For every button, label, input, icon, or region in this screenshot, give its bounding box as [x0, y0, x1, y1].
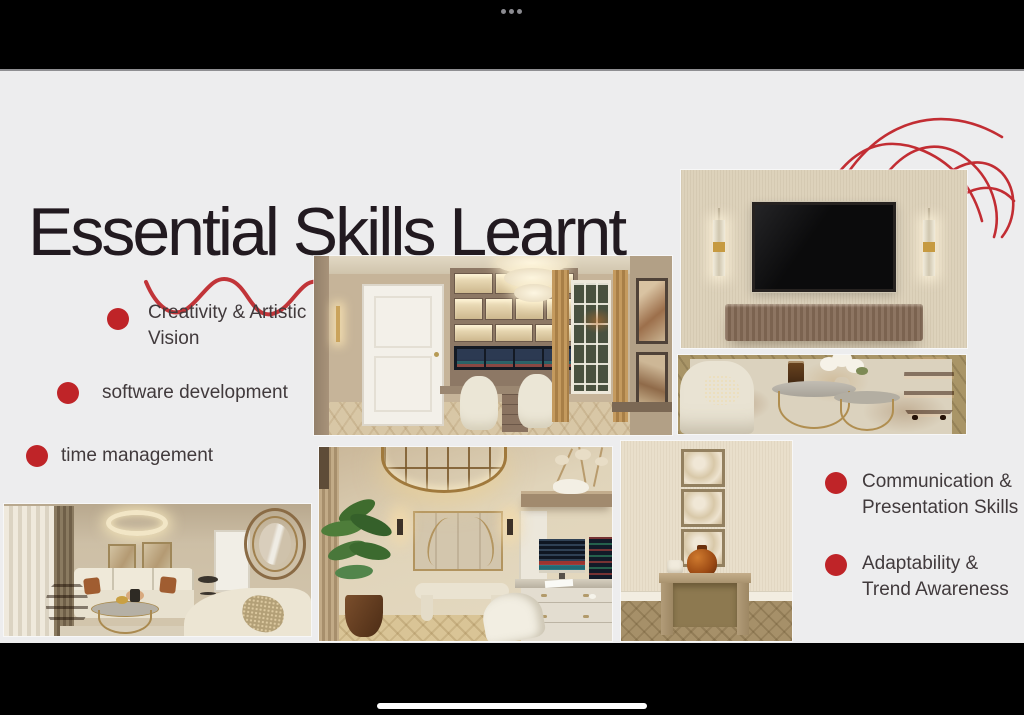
bottom-bar — [0, 643, 1024, 715]
decorative-wall-mirror — [413, 511, 503, 571]
metallic-pillow — [704, 375, 740, 405]
velvet-ottoman — [904, 357, 954, 417]
side-table — [198, 576, 218, 583]
bullet-label: Adaptability & Trend Awareness — [862, 551, 1024, 603]
wall-sconce — [507, 519, 513, 535]
coffee-table-vignette-image — [678, 355, 966, 434]
wall-sconce — [336, 306, 340, 342]
bullet-dot — [57, 382, 79, 404]
bullet-dot — [107, 308, 129, 330]
bullet-label: software development — [102, 380, 322, 406]
crystal-sconce — [923, 220, 935, 276]
wall-art — [681, 449, 725, 487]
app-window: Essential Skills Learnt Creativity & Art… — [0, 0, 1024, 715]
trading-monitor — [539, 539, 585, 573]
bullet-dot — [825, 472, 847, 494]
entry-office-pendant-image — [319, 447, 612, 641]
drum-pendant-light — [381, 447, 507, 493]
crystal-sconce — [713, 220, 725, 276]
round-gold-mirror — [244, 508, 306, 580]
wall-sconce — [397, 519, 403, 535]
tv-accent-wall-image — [681, 170, 967, 348]
presentation-slide: Essential Skills Learnt Creativity & Art… — [0, 69, 1024, 643]
round-ottoman — [46, 580, 88, 628]
window — [571, 280, 611, 394]
bullet-label: time management — [61, 443, 261, 469]
desk-chair — [518, 374, 556, 428]
white-door — [362, 284, 444, 426]
candle — [667, 560, 683, 574]
ring-pendant-light — [106, 510, 168, 536]
bullet-label: Creativity & Artistic Vision — [148, 300, 314, 352]
plant-pot — [345, 595, 383, 637]
top-status-bar — [0, 0, 1024, 69]
ellipsis-menu-icon[interactable] — [499, 7, 524, 16]
home-office-trading-desk-image — [314, 256, 672, 435]
tv-screen — [752, 202, 896, 292]
trading-monitor — [589, 537, 612, 581]
wall-art — [636, 352, 668, 406]
wall-art — [636, 278, 668, 344]
home-indicator[interactable] — [377, 703, 647, 709]
bullet-dot — [26, 445, 48, 467]
bullet-label: Communication & Presentation Skills — [862, 469, 1024, 521]
console-table — [659, 573, 751, 583]
bullet-dot — [825, 554, 847, 576]
living-room-sofa-image — [4, 504, 311, 636]
wall-art — [681, 489, 725, 527]
fluted-media-console — [725, 304, 923, 341]
curtain — [552, 270, 569, 422]
console-table-image — [621, 441, 792, 641]
curtain — [613, 270, 628, 422]
desk-chair — [460, 376, 498, 430]
